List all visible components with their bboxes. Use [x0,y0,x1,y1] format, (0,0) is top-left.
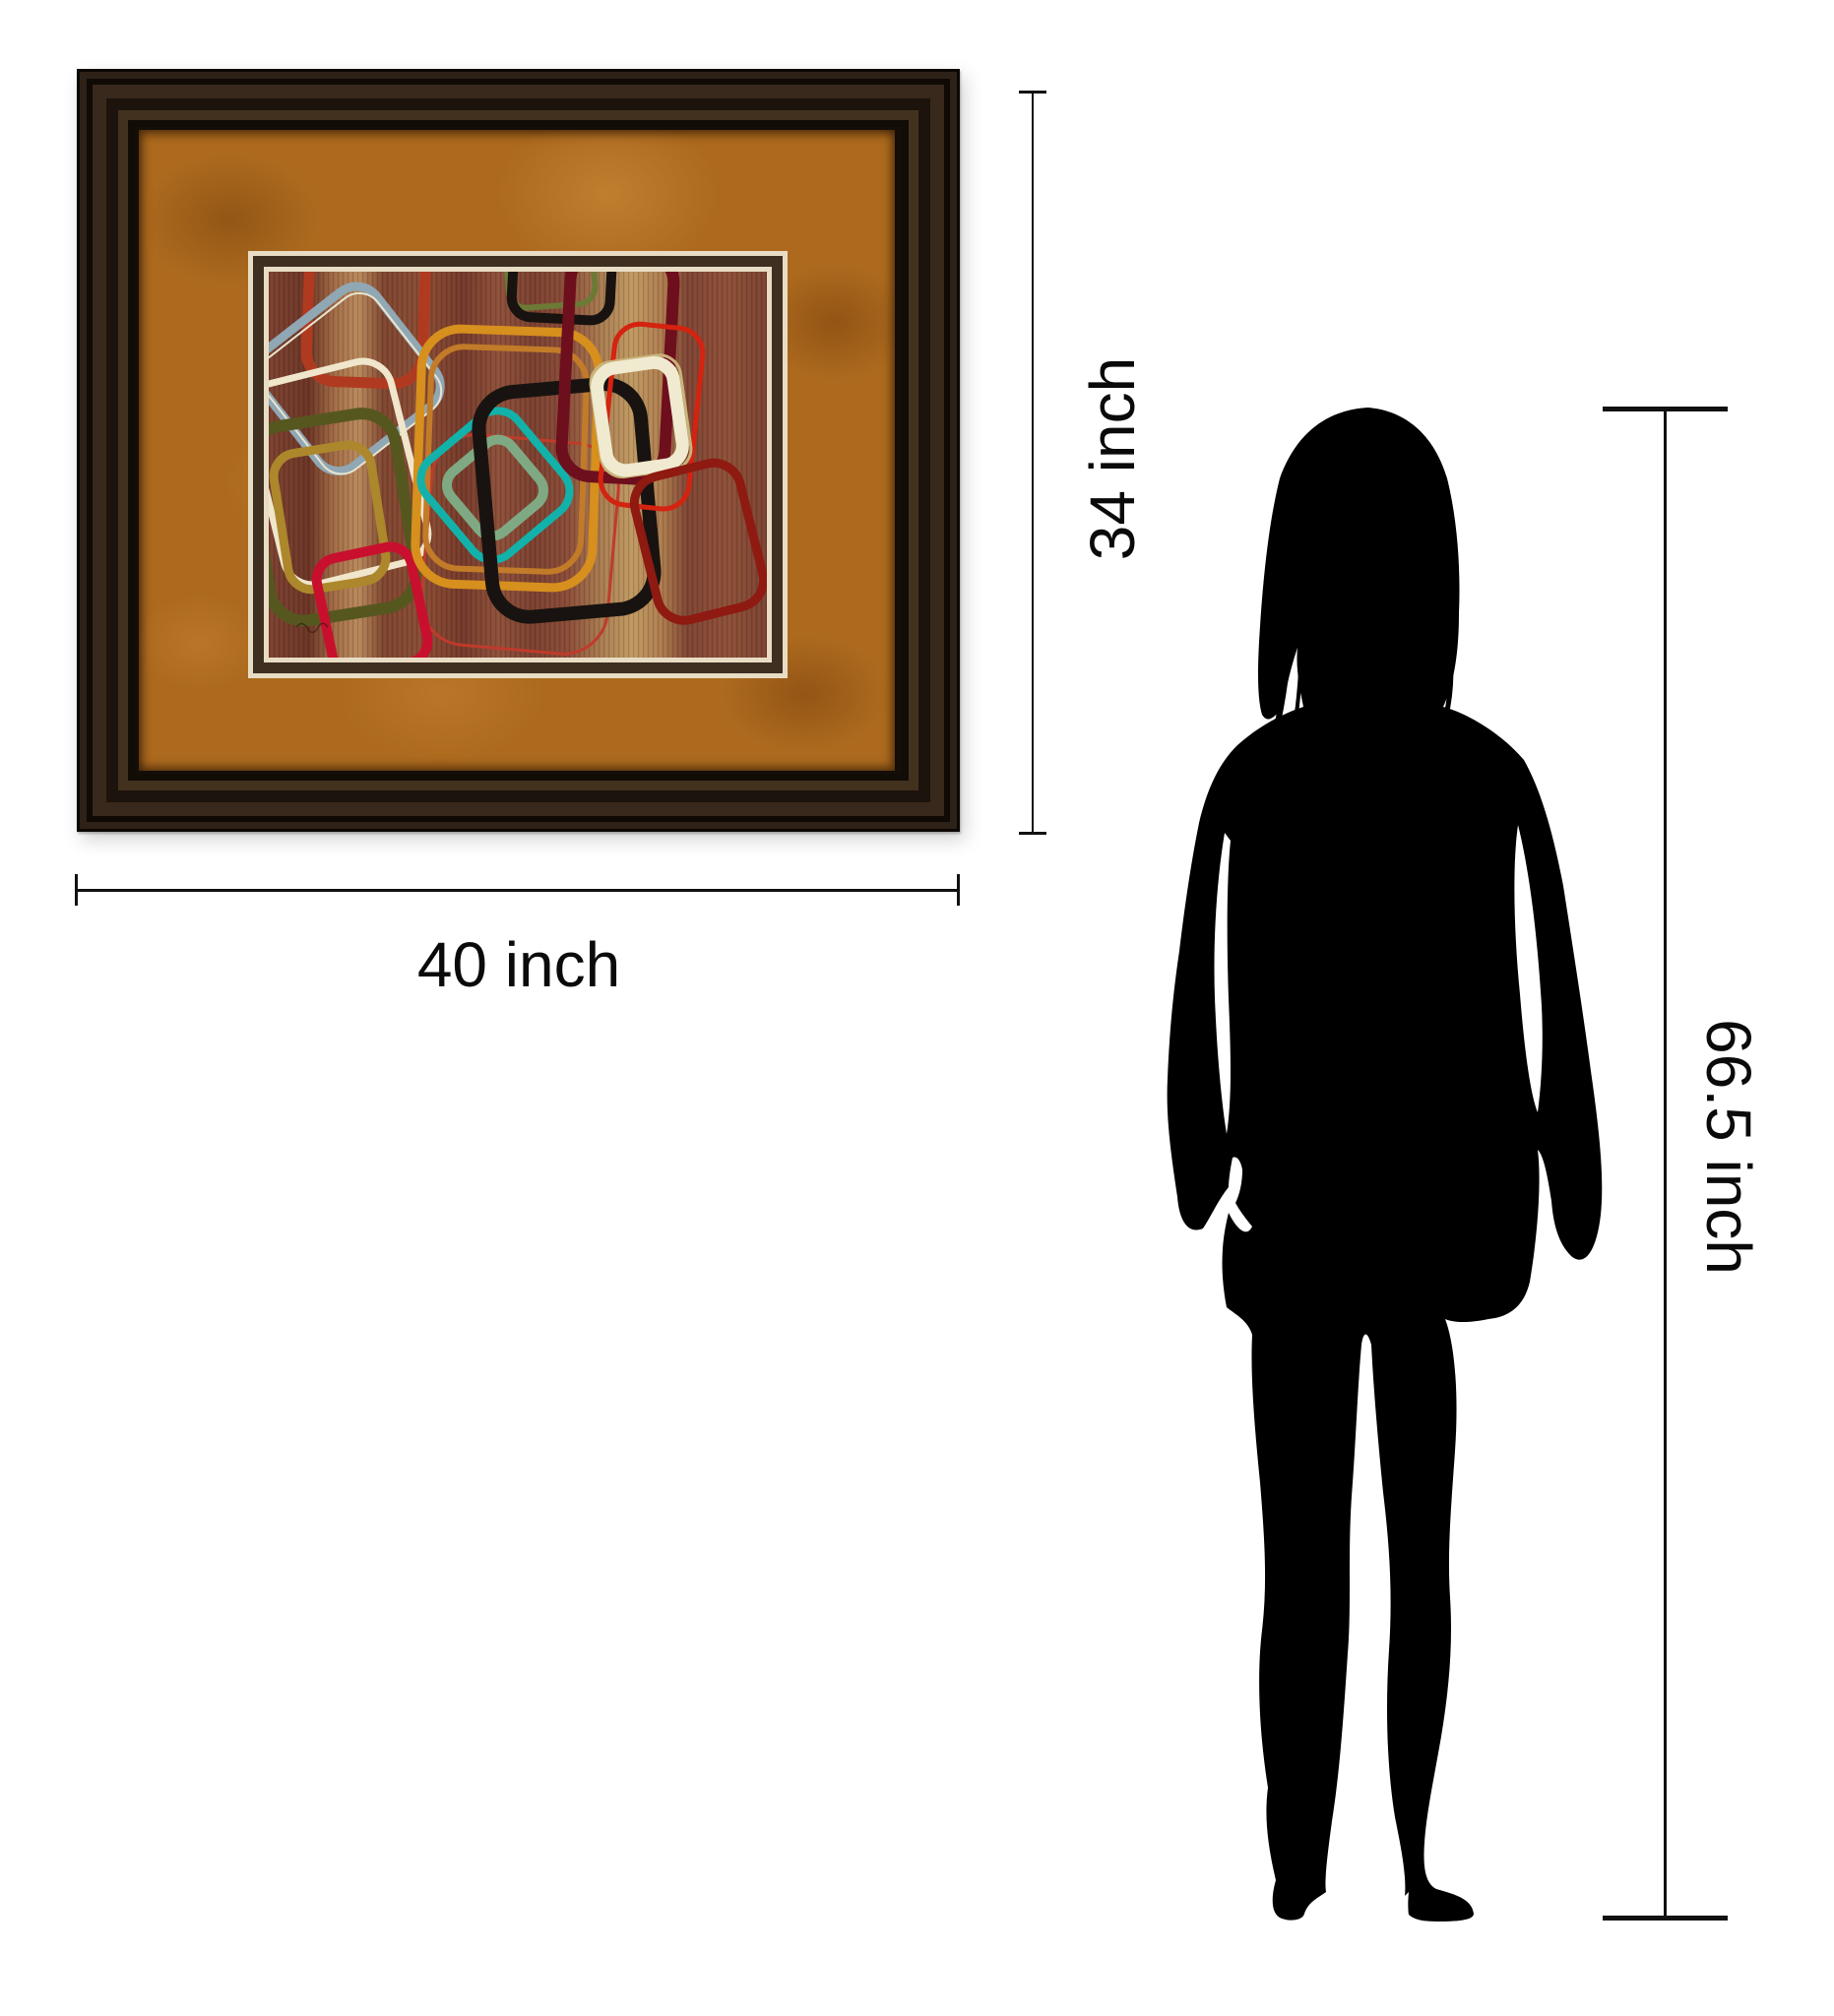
person-height-label: 66.5 inch [1697,1019,1760,1275]
width-dimension-label: 40 inch [417,933,620,996]
height-dimension-tick-top [1019,91,1046,94]
product-dimension-diagram: { "dimensions": { "width_label": "40 inc… [0,0,1834,2016]
woman-silhouette [1122,402,1624,1922]
abstract-artwork [269,272,767,658]
abstract-artwork-canvas [269,272,767,658]
width-dimension-tick-right [957,874,960,906]
height-dimension-tick-bottom [1019,832,1046,835]
scale-reference-person [1122,402,1624,1922]
picture-frame [77,69,960,832]
width-dimension-tick-left [75,874,78,906]
height-dimension-line [1032,93,1034,834]
width-dimension-line [76,889,960,892]
person-height-dimension-line [1664,409,1667,1919]
